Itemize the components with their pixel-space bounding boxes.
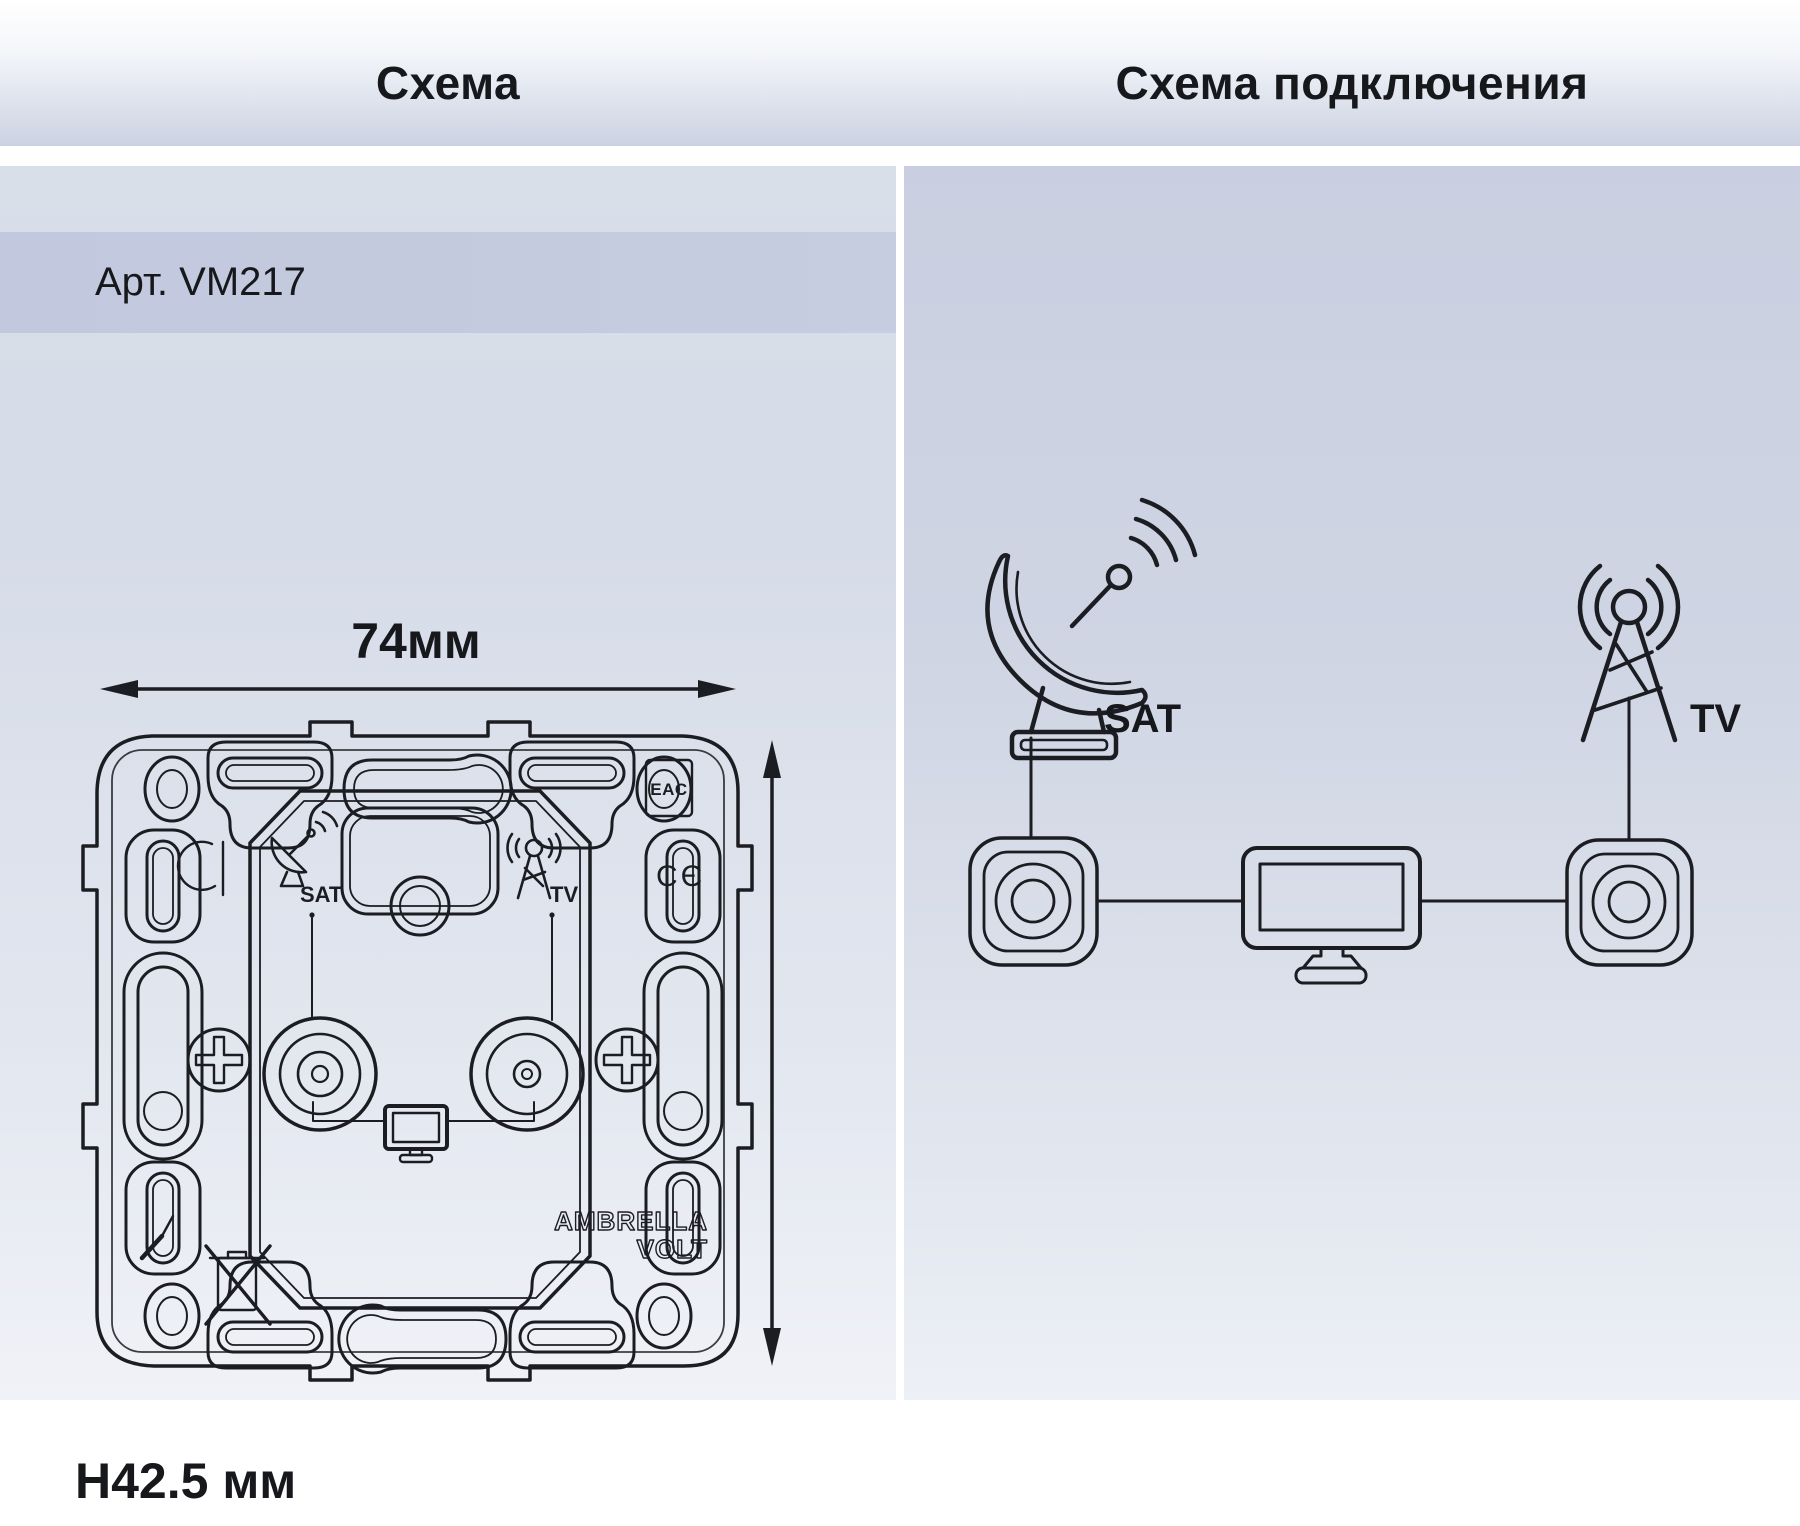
- depth-dimension-label: H42.5 мм: [75, 1453, 296, 1509]
- arrow-down-icon: [763, 1328, 781, 1366]
- connection-diagram: SAT TV: [904, 380, 1800, 1180]
- plate-top-opening: [342, 808, 498, 935]
- arrow-up-icon: [763, 740, 781, 778]
- diagram-sat-label: SAT: [1104, 697, 1181, 741]
- spec-sheet: Схема Схема подключения Арт. VM217 74мм …: [0, 0, 1800, 1400]
- right-panel-title: Схема подключения: [1116, 56, 1589, 110]
- panel-divider: [896, 166, 904, 1400]
- header-divider: [0, 146, 1800, 166]
- top-claw-slots: [208, 742, 634, 848]
- width-dimension: 74мм: [100, 613, 736, 698]
- sat-connector: [264, 1018, 376, 1130]
- plate-leader-lines: [309, 912, 554, 1121]
- mounting-frame-outline: [83, 722, 752, 1380]
- sat-socket-icon: [970, 838, 1097, 965]
- arrow-left-icon: [100, 680, 138, 698]
- tv-connector: [471, 1018, 583, 1130]
- height-dimension: 74мм: [763, 740, 820, 1366]
- diagram-tv-label: TV: [1690, 697, 1741, 741]
- ce-mark: CЄ: [656, 860, 705, 893]
- frame-technical-drawing: 74мм 74мм: [60, 546, 820, 1526]
- svg-text:EAC: EAC: [650, 780, 687, 799]
- no-trash-icon: [206, 1246, 270, 1324]
- width-dimension-label: 74мм: [351, 613, 481, 669]
- sat-dish-glyph: [272, 812, 337, 886]
- article-band: Арт. VM217: [0, 232, 896, 333]
- scheme-panel: Арт. VM217 74мм 74мм: [0, 166, 896, 1400]
- article-number: Арт. VM217: [95, 232, 896, 333]
- height-dimension-label: 74мм: [811, 988, 820, 1118]
- tv-socket-icon: [1567, 840, 1692, 965]
- svg-text:VOLT: VOLT: [637, 1234, 708, 1264]
- cross-screw-icon: [188, 1029, 658, 1091]
- connection-panel: SAT TV: [904, 166, 1800, 1400]
- svg-text:AMBRELLA: AMBRELLA: [554, 1206, 708, 1236]
- left-panel-title: Схема: [376, 56, 520, 110]
- tv-set-icon: [1243, 848, 1420, 983]
- bottom-keyhole-slot: [339, 1305, 506, 1373]
- arrow-right-icon: [698, 680, 736, 698]
- corner-screw-holes: [145, 757, 691, 1348]
- tv-monitor-glyph: [385, 1106, 447, 1162]
- page-header: Схема Схема подключения: [0, 0, 1800, 146]
- plate-tv-label: TV: [550, 882, 578, 907]
- plate-sat-label: SAT: [300, 882, 343, 907]
